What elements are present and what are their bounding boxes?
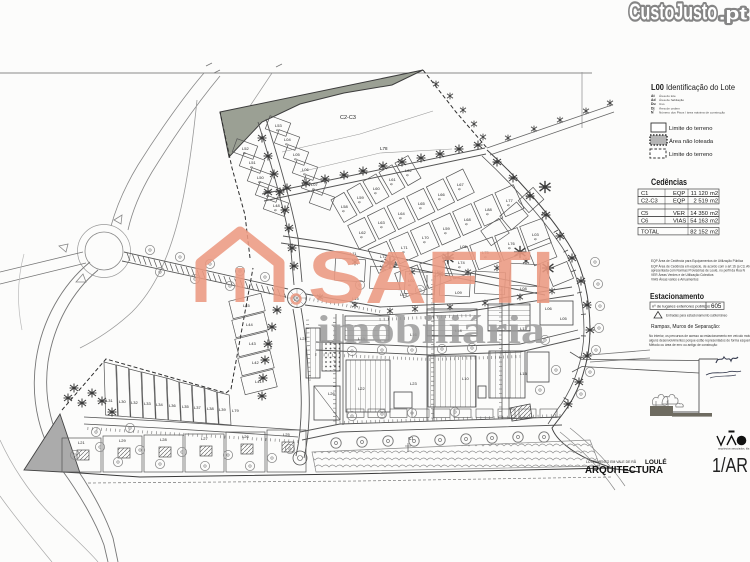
svg-text:apresentada com Normas Provisó: apresentada com Normas Provisórias de Lo… bbox=[651, 269, 746, 273]
svg-text:L10: L10 bbox=[462, 376, 469, 381]
svg-text:Rampas, Muros de Separação:: Rampas, Muros de Separação: bbox=[651, 324, 720, 330]
svg-text:L21: L21 bbox=[78, 440, 85, 445]
svg-text:VER Áreas Verdes e de Utiliz: VER Áreas Verdes e de Utilização Colecti… bbox=[651, 273, 714, 277]
svg-text:L05: L05 bbox=[293, 152, 300, 157]
svg-text:L42: L42 bbox=[252, 360, 259, 365]
svg-text:L30: L30 bbox=[119, 399, 126, 404]
svg-text:L58: L58 bbox=[341, 204, 348, 209]
svg-text:L24: L24 bbox=[300, 336, 307, 341]
svg-text:EQP Área de Cedência para Eq: EQP Área de Cedência para Equipamentos d… bbox=[651, 259, 743, 263]
svg-text:54 163: 54 163 bbox=[690, 218, 708, 224]
svg-text:L67: L67 bbox=[457, 182, 464, 187]
svg-text:L78: L78 bbox=[380, 146, 388, 151]
svg-text:m2: m2 bbox=[710, 218, 718, 224]
svg-text:LOTEAMENTO EM VALE DE RÃ: LOTEAMENTO EM VALE DE RÃ bbox=[586, 459, 637, 464]
svg-text:ARQUITECTURA: ARQUITECTURA bbox=[585, 465, 663, 476]
svg-text:L36: L36 bbox=[169, 403, 176, 408]
svg-text:L63: L63 bbox=[378, 220, 385, 225]
svg-text:L05: L05 bbox=[560, 316, 567, 321]
svg-text:L77: L77 bbox=[506, 198, 513, 203]
svg-text:L64: L64 bbox=[398, 211, 405, 216]
svg-text:EQP: EQP bbox=[673, 198, 685, 204]
svg-text:m2: m2 bbox=[710, 191, 718, 197]
svg-text:m2: m2 bbox=[710, 198, 718, 204]
svg-text:L59: L59 bbox=[443, 226, 450, 231]
svg-text:L23: L23 bbox=[410, 381, 417, 386]
svg-text:Número dos Pisos / área máxima: Número dos Pisos / área máxima de constr… bbox=[659, 110, 725, 114]
svg-text:arquitectos associados, lda: arquitectos associados, lda bbox=[718, 447, 750, 451]
svg-text:L38: L38 bbox=[207, 406, 214, 411]
svg-text:L66: L66 bbox=[438, 192, 445, 197]
svg-text:L51: L51 bbox=[249, 160, 256, 165]
svg-text:L32: L32 bbox=[131, 400, 138, 405]
svg-text:TOTAL: TOTAL bbox=[641, 229, 660, 235]
svg-text:L65: L65 bbox=[418, 201, 425, 206]
svg-text:alguns desenvolvimentos porque: alguns desenvolvimentos porque estão rep… bbox=[649, 339, 750, 343]
svg-text:L60: L60 bbox=[373, 186, 380, 191]
svg-text:CustoJusto: CustoJusto bbox=[629, 0, 717, 25]
svg-text:VER: VER bbox=[673, 211, 685, 217]
svg-text:.pt: .pt bbox=[719, 4, 747, 24]
svg-text:L35: L35 bbox=[182, 404, 189, 409]
svg-text:L15: L15 bbox=[520, 371, 527, 376]
svg-text:L33: L33 bbox=[144, 401, 151, 406]
svg-text:m2: m2 bbox=[710, 229, 718, 235]
svg-text:L44: L44 bbox=[246, 322, 253, 327]
svg-text:L48: L48 bbox=[273, 203, 280, 208]
svg-text:Área não loteada: Área não loteada bbox=[669, 138, 714, 145]
svg-text:L31: L31 bbox=[106, 398, 113, 403]
svg-text:imobiliária: imobiliária bbox=[317, 307, 545, 352]
svg-text:L25: L25 bbox=[283, 432, 290, 437]
svg-text:L34: L34 bbox=[156, 402, 163, 407]
svg-text:C6: C6 bbox=[641, 218, 648, 224]
svg-text:VIAS Áreas vários e Arruament: VIAS Áreas vários e Arruamentos bbox=[651, 278, 699, 282]
svg-text:11 120: 11 120 bbox=[691, 191, 708, 197]
svg-text:L22: L22 bbox=[358, 386, 365, 391]
svg-text:L28: L28 bbox=[160, 437, 167, 442]
svg-text:L00 Identificação do Lote: L00 Identificação do Lote bbox=[651, 83, 736, 92]
svg-text:Limite do terreno: Limite do terreno bbox=[669, 126, 713, 132]
svg-text:L59: L59 bbox=[357, 195, 364, 200]
svg-text:L79: L79 bbox=[232, 408, 239, 413]
svg-text:C5: C5 bbox=[641, 211, 648, 217]
svg-text:EQP: EQP bbox=[673, 191, 685, 197]
svg-text:L61: L61 bbox=[389, 177, 396, 182]
svg-text:L07: L07 bbox=[311, 182, 318, 187]
svg-text:L88: L88 bbox=[485, 207, 492, 212]
svg-text:1/AR: 1/AR bbox=[712, 454, 748, 477]
svg-text:L50: L50 bbox=[257, 175, 264, 180]
svg-text:Cedências: Cedências bbox=[651, 177, 687, 187]
svg-text:L62: L62 bbox=[405, 168, 412, 173]
svg-text:C1: C1 bbox=[641, 191, 648, 197]
svg-text:L45: L45 bbox=[243, 303, 250, 308]
svg-text:L39: L39 bbox=[219, 407, 226, 412]
svg-text:L43: L43 bbox=[249, 341, 256, 346]
svg-text:m2: m2 bbox=[710, 211, 718, 217]
svg-text:Entradas para estacionamento s: Entradas para estacionamento subterrâneo bbox=[666, 314, 728, 318]
svg-text:L52: L52 bbox=[242, 146, 249, 151]
svg-text:605: 605 bbox=[711, 303, 722, 310]
svg-text:L62: L62 bbox=[359, 230, 366, 235]
svg-text:C2-C3: C2-C3 bbox=[340, 115, 356, 121]
svg-text:L53: L53 bbox=[275, 123, 282, 128]
svg-text:Estacionamento: Estacionamento bbox=[650, 291, 704, 301]
svg-text:2 519: 2 519 bbox=[693, 198, 708, 204]
svg-text:VIAS: VIAS bbox=[673, 218, 686, 224]
svg-text:L68: L68 bbox=[464, 217, 471, 222]
svg-text:Método ou área de erro ou anti: Método ou área de erro ou antigo de cons… bbox=[649, 343, 717, 347]
svg-text:C2-C3: C2-C3 bbox=[641, 198, 658, 204]
svg-text:L37: L37 bbox=[194, 405, 201, 410]
svg-text:No interior, os percursos de a: No interior, os percursos de acesso ao e… bbox=[649, 334, 750, 338]
svg-text:nº de lugares exteriores públi: nº de lugares exteriores públicos bbox=[652, 304, 710, 309]
svg-text:82 152: 82 152 bbox=[690, 229, 708, 235]
svg-text:Limite do terreno: Limite do terreno bbox=[669, 152, 713, 158]
svg-text:L04: L04 bbox=[284, 137, 291, 142]
svg-text:14 350: 14 350 bbox=[690, 211, 708, 217]
svg-text:L29: L29 bbox=[119, 438, 126, 443]
